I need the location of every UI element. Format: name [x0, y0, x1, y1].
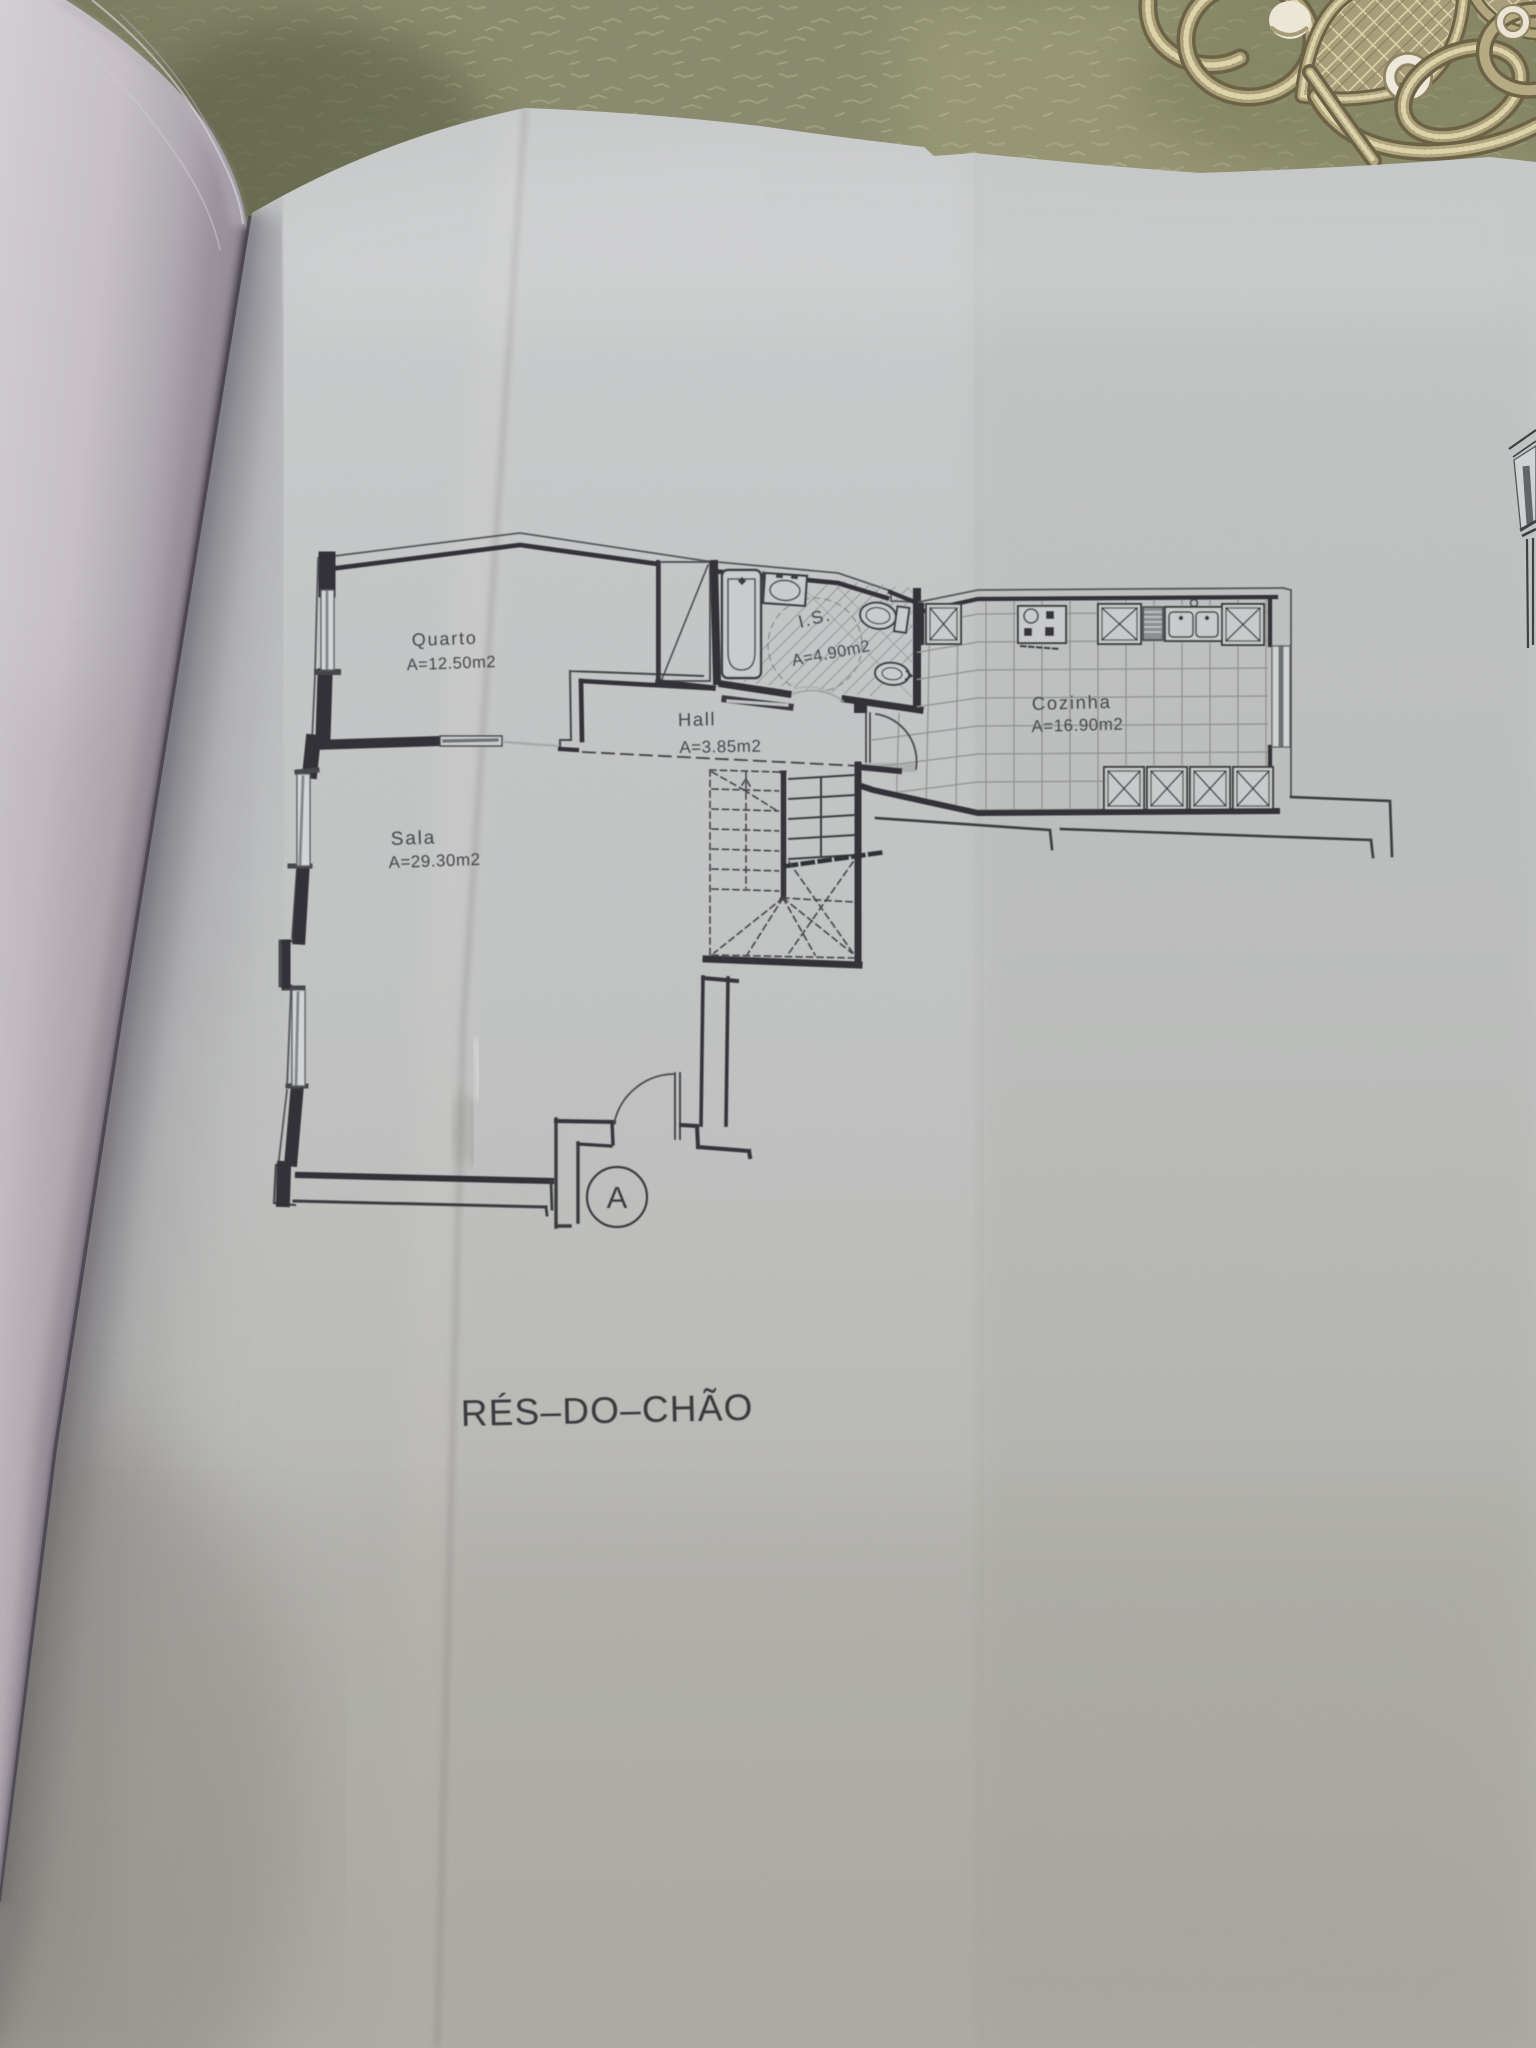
svg-text:A=16.90m2: A=16.90m2: [1031, 715, 1123, 736]
svg-text:Hall: Hall: [678, 708, 717, 730]
svg-text:A=12.50m2: A=12.50m2: [406, 653, 496, 674]
svg-text:A=29.30m2: A=29.30m2: [388, 850, 481, 872]
svg-text:Quarto: Quarto: [411, 628, 478, 650]
svg-text:A=3.85m2: A=3.85m2: [679, 737, 761, 757]
svg-text:Cozinha: Cozinha: [1032, 691, 1112, 714]
svg-text:A: A: [607, 1180, 628, 1215]
svg-text:RÉS–DO–CHÃO: RÉS–DO–CHÃO: [460, 1387, 754, 1434]
svg-text:Sala: Sala: [390, 827, 436, 850]
